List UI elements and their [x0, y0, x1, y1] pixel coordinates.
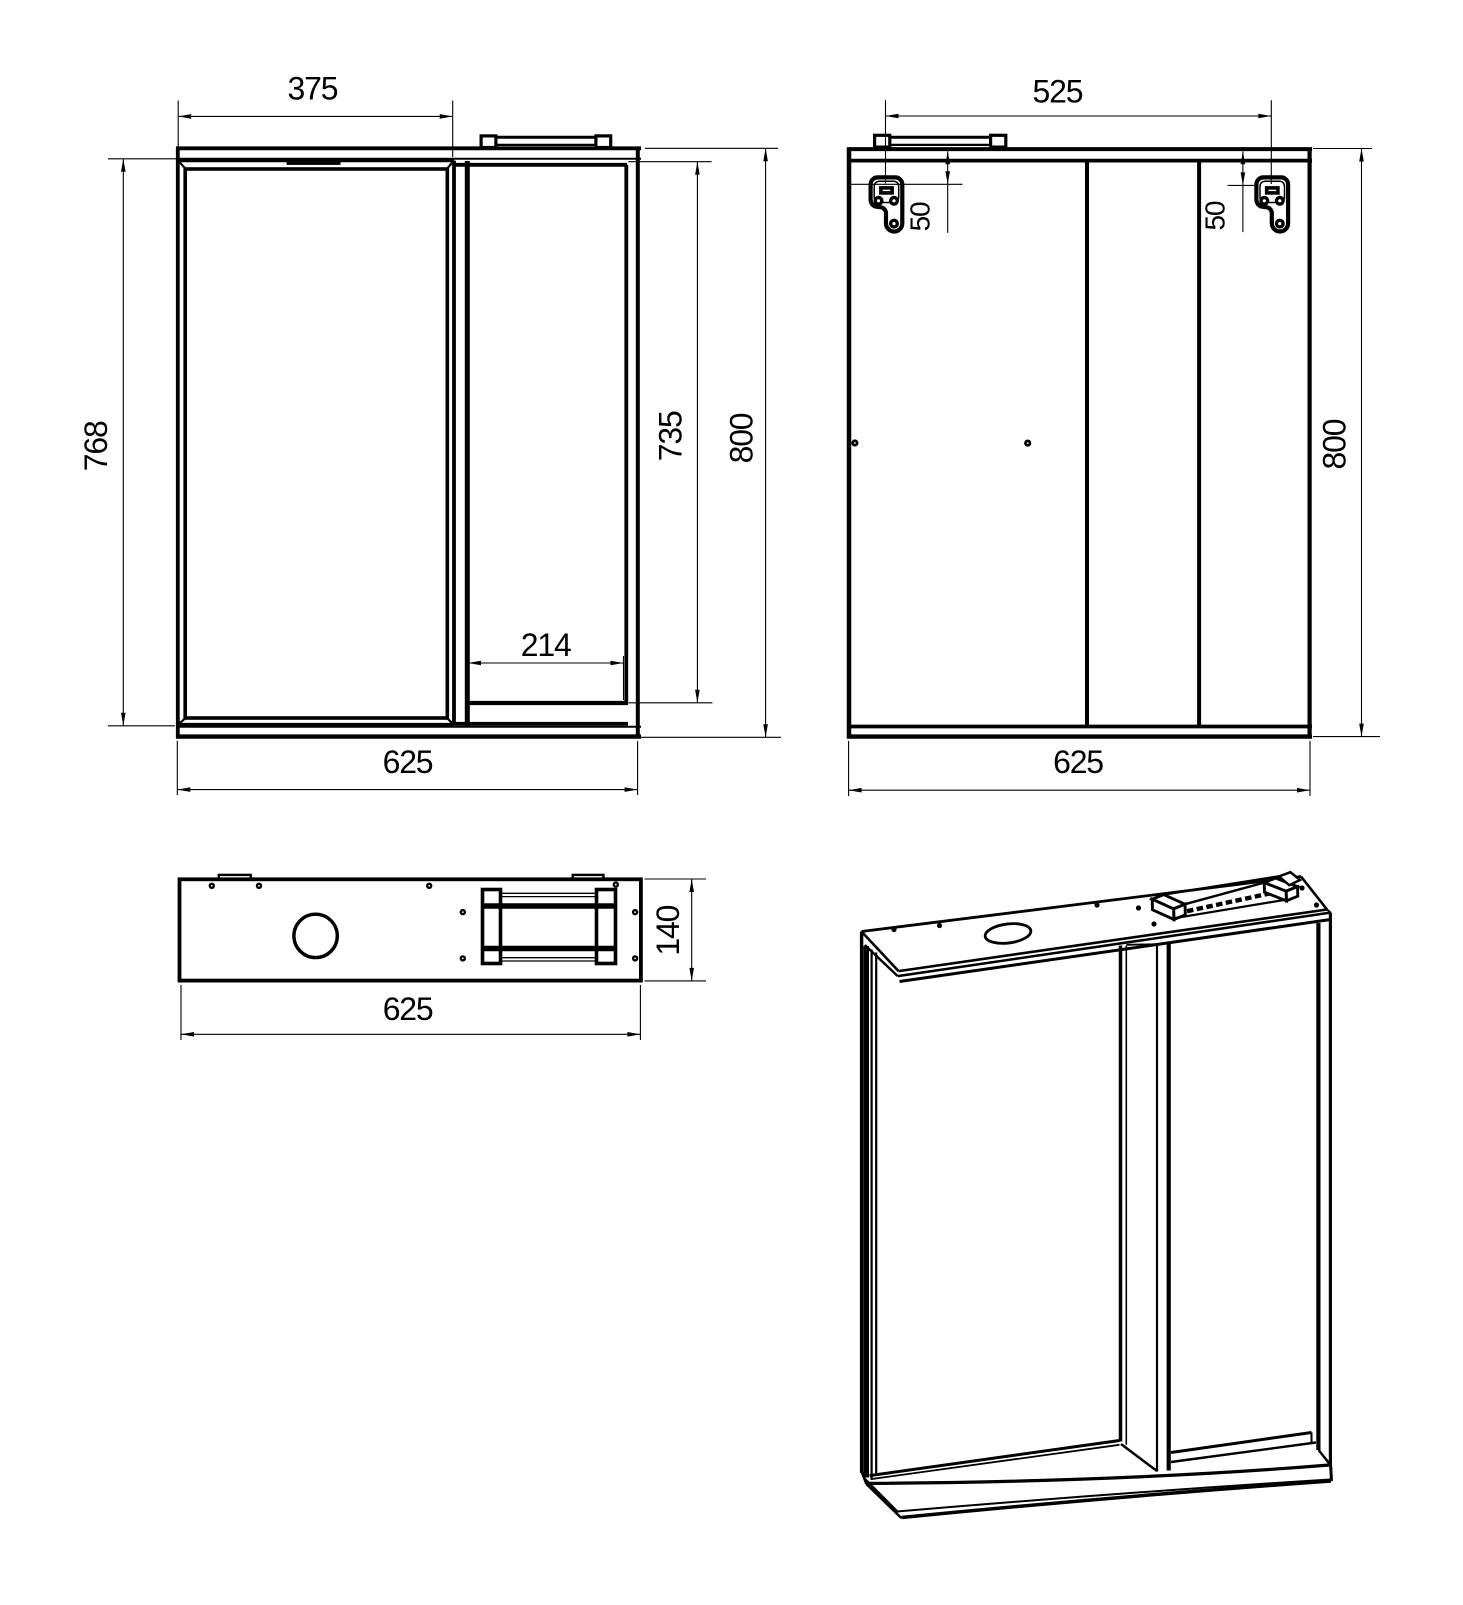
svg-text:735: 735 — [653, 411, 689, 461]
svg-text:768: 768 — [78, 421, 114, 471]
svg-text:50: 50 — [1200, 201, 1231, 230]
svg-text:625: 625 — [383, 744, 433, 780]
svg-text:214: 214 — [521, 627, 571, 663]
svg-text:525: 525 — [1033, 73, 1083, 109]
svg-text:800: 800 — [724, 413, 760, 463]
svg-text:375: 375 — [288, 71, 338, 107]
svg-text:625: 625 — [383, 991, 433, 1027]
svg-text:50: 50 — [904, 202, 935, 231]
svg-text:625: 625 — [1053, 744, 1103, 780]
svg-text:140: 140 — [650, 905, 686, 955]
svg-text:800: 800 — [1317, 419, 1353, 469]
